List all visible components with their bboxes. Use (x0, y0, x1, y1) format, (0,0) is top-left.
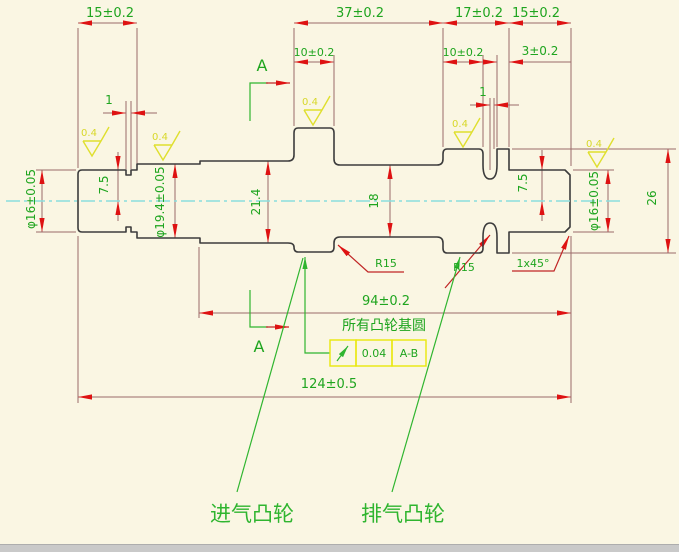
tolerance-datum: A-B (400, 347, 418, 360)
dim-radius-left: R15 (375, 257, 397, 270)
roughness-value-4: 0.4 (452, 119, 468, 130)
dim-radius-right: R15 (453, 261, 475, 274)
roughness-value-3: 0.4 (302, 97, 318, 108)
dim-left-half-height: 7.5 (97, 175, 111, 194)
dim-right-half-height: 7.5 (516, 173, 530, 192)
roughness-value-1: 0.4 (81, 128, 97, 139)
dim-groove-right: 1 (479, 85, 487, 99)
dim-disc-width: 3±0.2 (522, 44, 559, 58)
dim-exhaust-group: 17±0.2 (455, 6, 503, 21)
dim-chamfer: 1x45° (516, 257, 549, 270)
dim-base-circle-diameter: 21.4 (249, 189, 263, 216)
dim-intake-exhaust-span: 37±0.2 (336, 6, 384, 21)
bottom-gray-bar (0, 544, 679, 552)
camshaft-drawing: 0.04 A-B 15±0.2 37±0.2 17±0.2 15±0.2 10±… (0, 0, 679, 552)
dim-groove-left: 1 (105, 93, 113, 107)
tolerance-value: 0.04 (362, 347, 387, 360)
drawing-background (0, 0, 679, 552)
dim-center-shaft-diameter: 18 (367, 193, 381, 208)
roughness-value-2: 0.4 (152, 132, 168, 143)
dim-left-journal-diameter: φ16±0.05 (24, 169, 38, 229)
dim-right-journal-diameter: φ16±0.05 (587, 171, 601, 231)
section-label-bottom: A (254, 337, 265, 356)
cad-drawing-canvas: 0.04 A-B 15±0.2 37±0.2 17±0.2 15±0.2 10±… (0, 0, 679, 552)
base-circle-note: 所有凸轮基圆 (342, 317, 426, 334)
dim-length-124: 124±0.5 (301, 377, 357, 392)
dim-second-journal-diameter: φ19.4±0.05 (153, 166, 167, 237)
dim-length-94: 94±0.2 (362, 294, 410, 309)
exhaust-cam-label: 排气凸轮 (361, 502, 445, 526)
dim-exhaust-cam-width: 10±0.2 (443, 46, 484, 59)
roughness-value-5: 0.4 (586, 139, 602, 150)
dim-cam-total-height: 26 (645, 190, 659, 205)
dim-intake-cam-width: 10±0.2 (294, 46, 335, 59)
dim-left-end-length: 15±0.2 (86, 6, 134, 21)
dim-right-end-length: 15±0.2 (512, 6, 560, 21)
section-label-top: A (257, 56, 268, 75)
intake-cam-label: 进气凸轮 (210, 502, 294, 526)
